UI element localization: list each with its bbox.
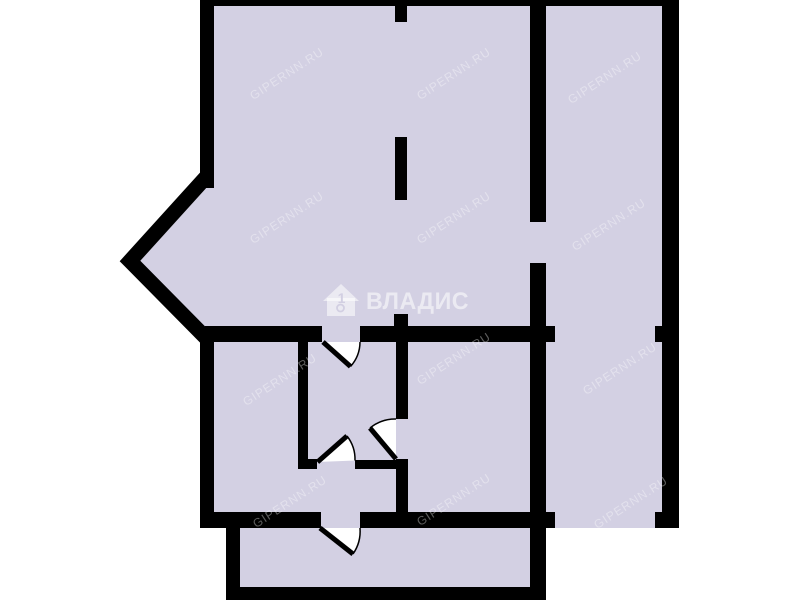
svg-text:1: 1 bbox=[338, 290, 346, 306]
svg-text:ВЛАДИС: ВЛАДИС bbox=[366, 288, 469, 315]
